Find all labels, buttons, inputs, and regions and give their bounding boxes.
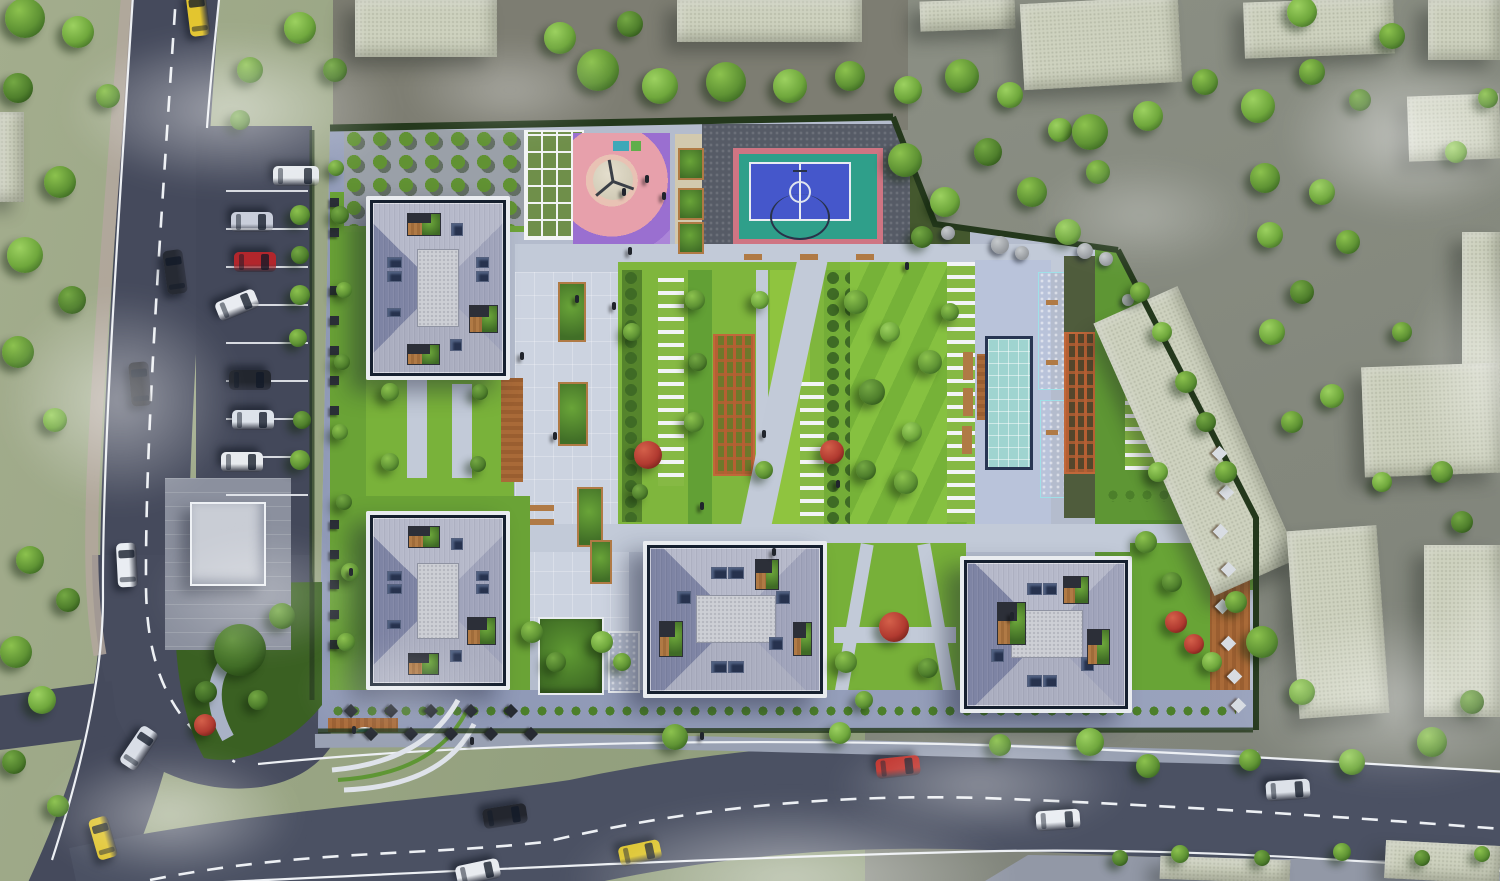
fog-cloud <box>1280 50 1500 220</box>
fog-cloud <box>1030 160 1250 270</box>
fog-cloud <box>150 530 370 660</box>
fog-cloud <box>60 30 400 190</box>
fog-cloud <box>40 750 300 880</box>
masterplan-aerial-render <box>0 0 1500 881</box>
fog-cloud <box>0 290 240 510</box>
fog-layer <box>0 0 1500 881</box>
fog-cloud <box>400 40 620 140</box>
fog-cloud <box>300 640 500 740</box>
fog-cloud <box>1410 250 1500 490</box>
fog-cloud <box>830 730 1130 840</box>
